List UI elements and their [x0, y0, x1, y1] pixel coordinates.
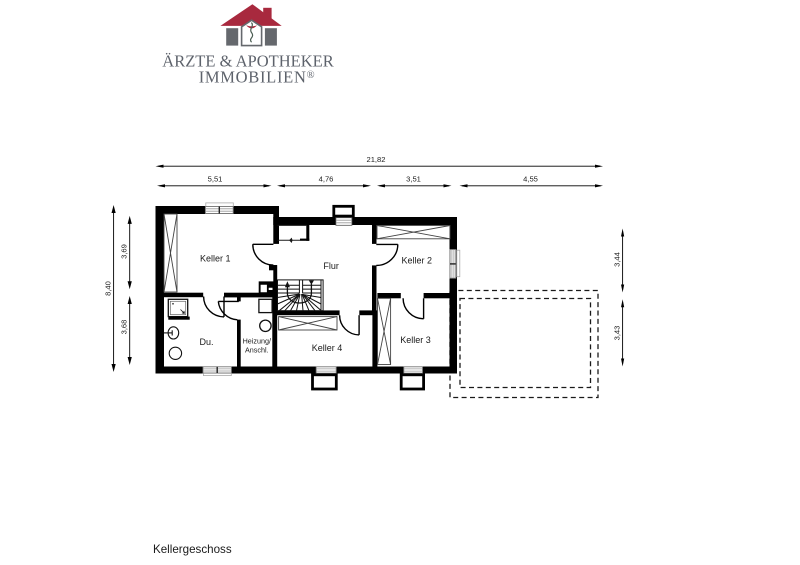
svg-text:3,51: 3,51 — [406, 174, 421, 183]
svg-text:3,69: 3,69 — [120, 244, 129, 259]
svg-text:Heizung/: Heizung/ — [243, 337, 271, 346]
svg-text:Keller 3: Keller 3 — [400, 335, 431, 345]
svg-text:Flur: Flur — [323, 261, 339, 271]
svg-text:3,43: 3,43 — [613, 326, 622, 341]
svg-text:8,40: 8,40 — [104, 281, 113, 296]
svg-text:Kellergeschoss: Kellergeschoss — [153, 543, 232, 556]
svg-text:4,76: 4,76 — [319, 174, 334, 183]
svg-text:4,55: 4,55 — [523, 174, 538, 183]
svg-text:Keller 1: Keller 1 — [200, 253, 231, 263]
svg-text:Keller 2: Keller 2 — [401, 256, 432, 266]
svg-text:Du.: Du. — [199, 337, 213, 347]
svg-text:Keller 4: Keller 4 — [312, 343, 343, 353]
svg-text:5,51: 5,51 — [208, 174, 223, 183]
svg-text:3,44: 3,44 — [613, 252, 622, 267]
svg-text:Anschl.: Anschl. — [245, 346, 269, 355]
svg-text:3,68: 3,68 — [120, 320, 129, 335]
svg-text:IMMOBILIEN®: IMMOBILIEN® — [199, 68, 316, 87]
svg-text:21,82: 21,82 — [366, 155, 385, 164]
